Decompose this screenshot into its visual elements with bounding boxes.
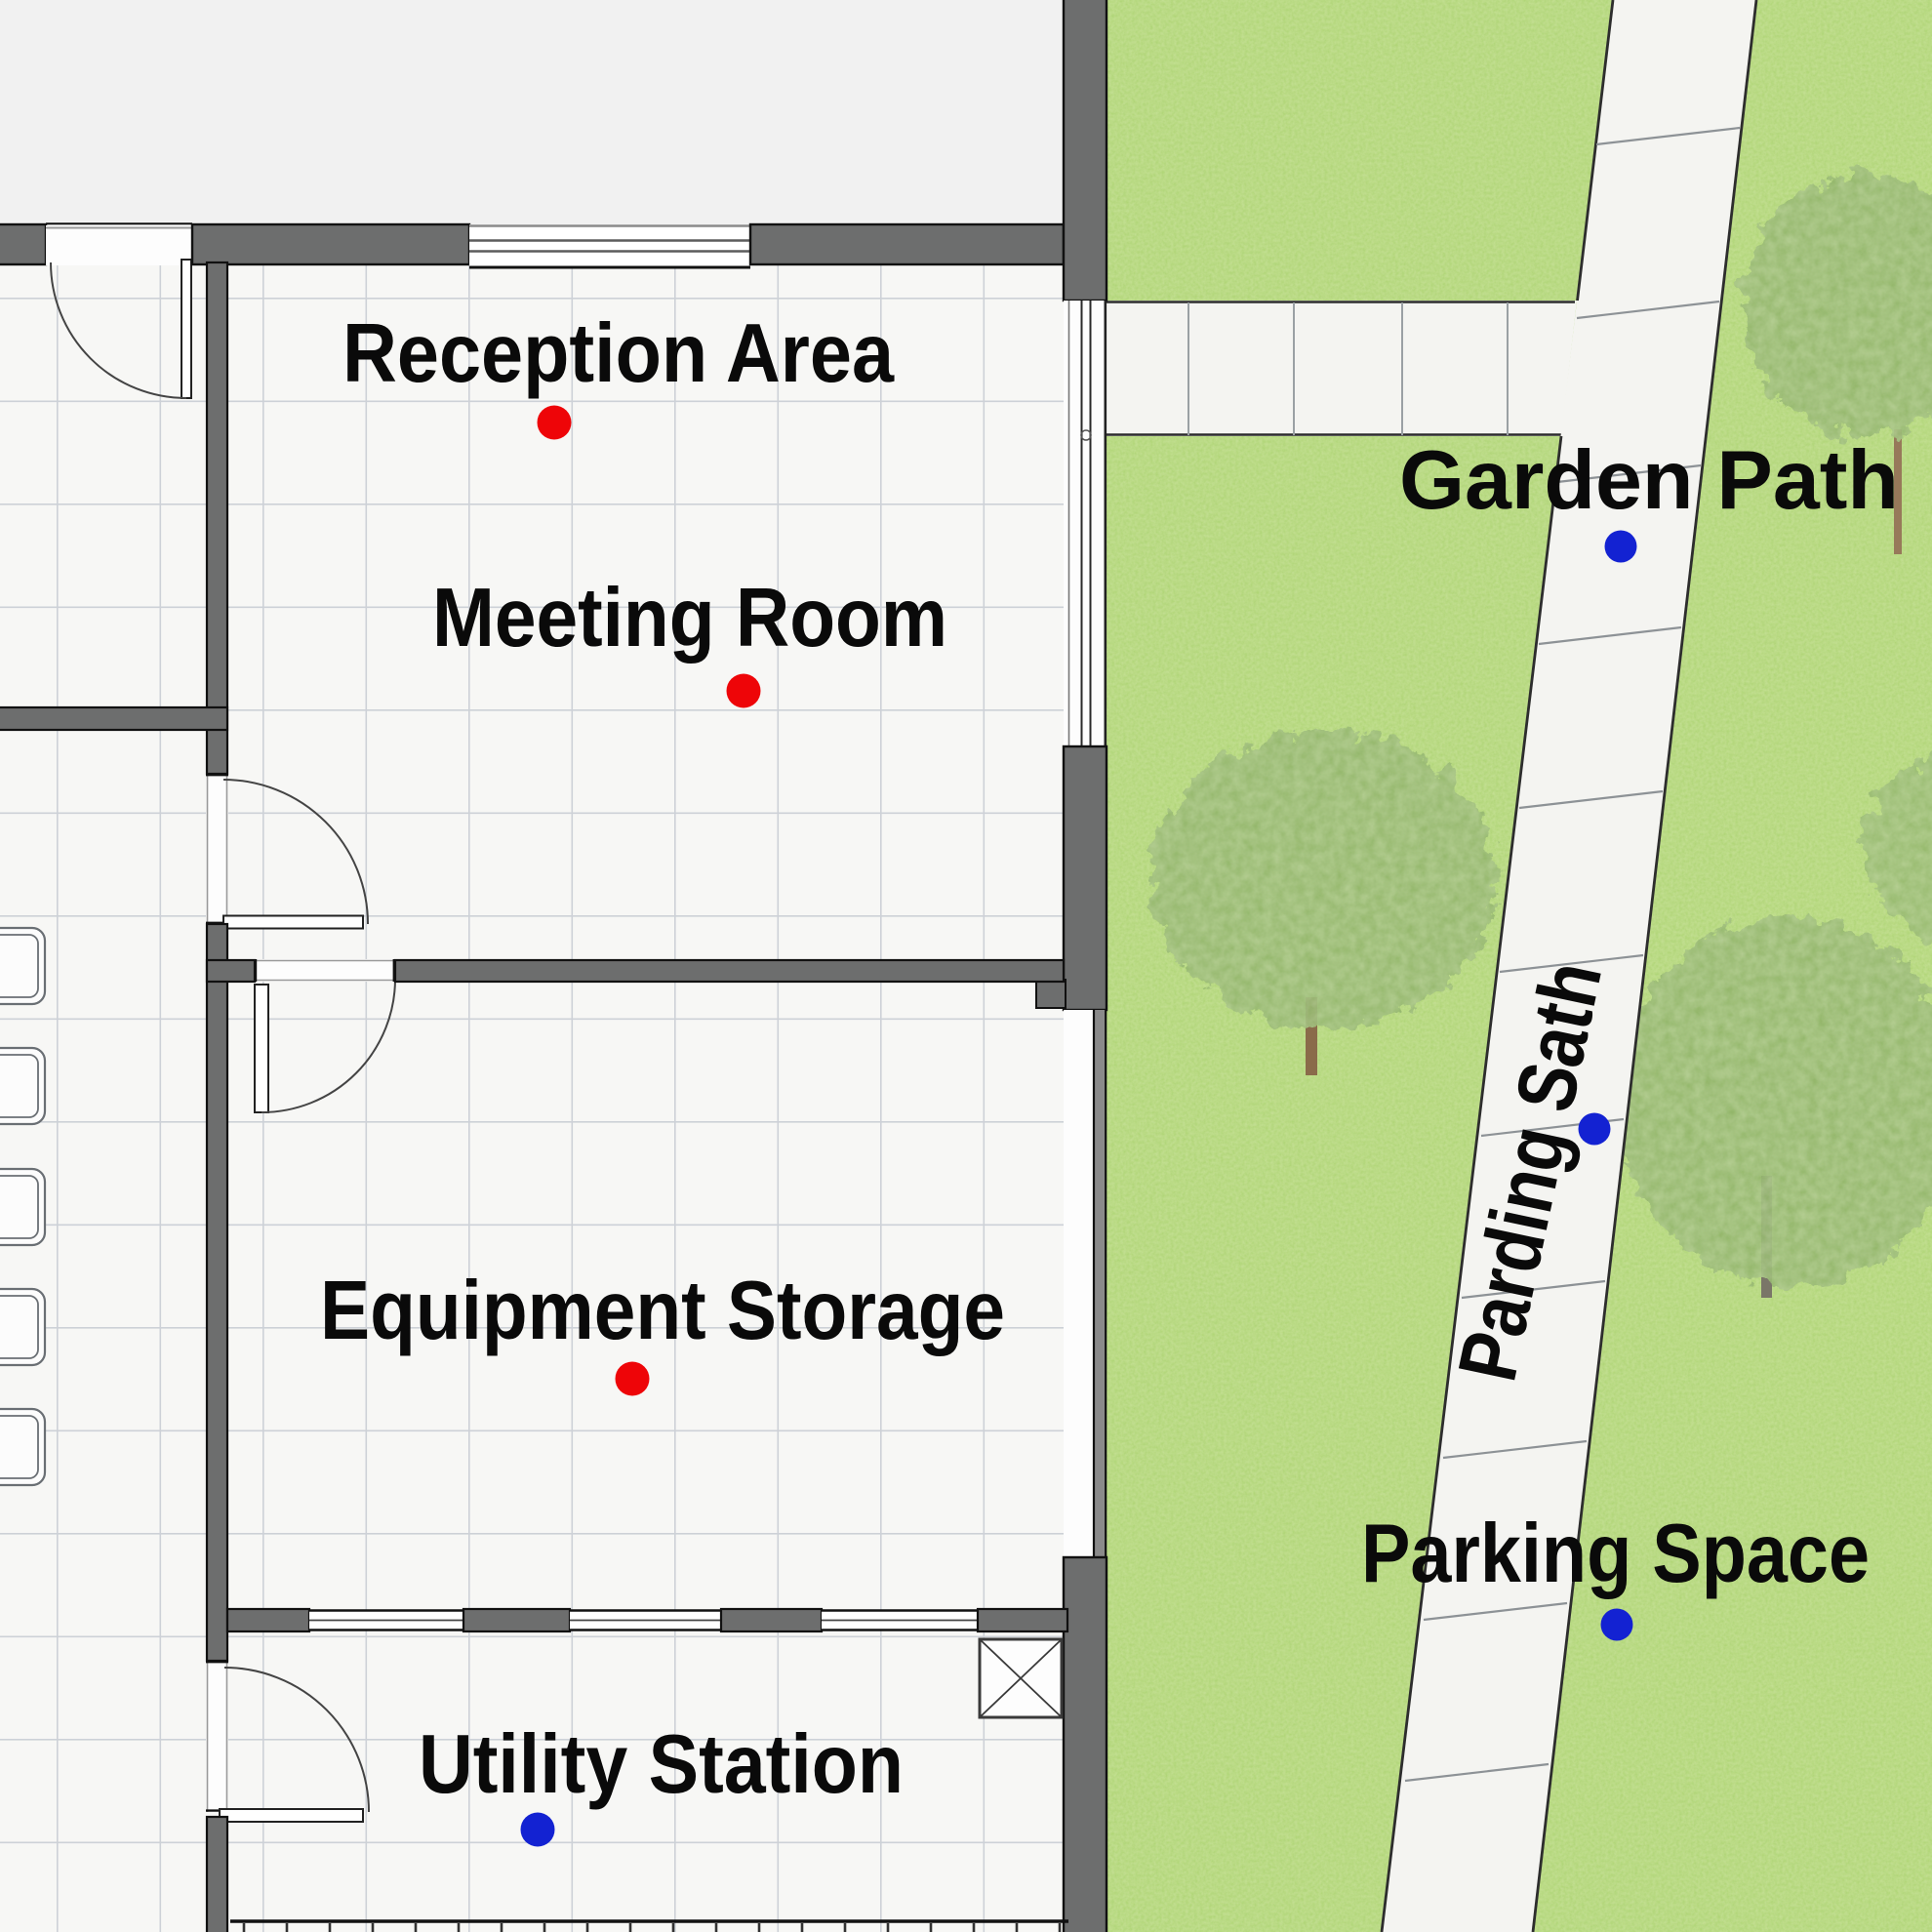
svg-text:Garden Path: Garden Path <box>1399 434 1899 527</box>
svg-text:Meeting Room: Meeting Room <box>432 572 947 664</box>
svg-text:Parking Space: Parking Space <box>1361 1508 1870 1600</box>
svg-text:Utility Station: Utility Station <box>419 1718 904 1811</box>
svg-text:Reception Area: Reception Area <box>342 307 895 400</box>
svg-text:Equipment Storage: Equipment Storage <box>320 1265 1005 1357</box>
